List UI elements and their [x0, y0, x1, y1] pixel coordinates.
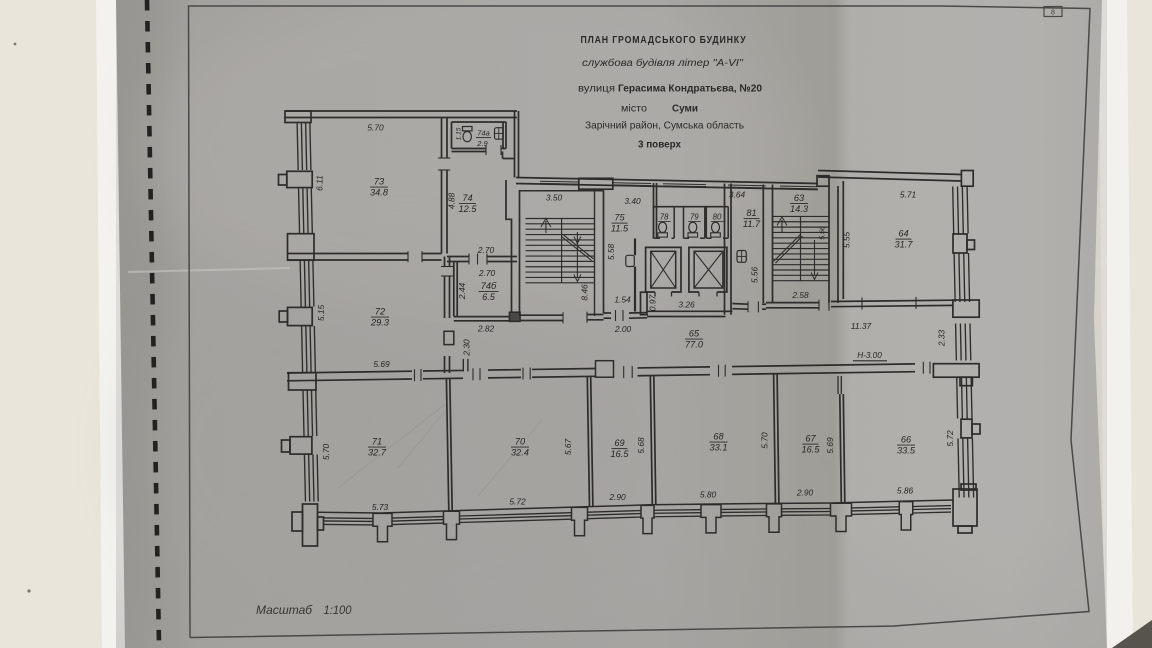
- svg-text:Н-3.00: Н-3.00: [857, 351, 882, 360]
- svg-text:3.64: 3.64: [729, 190, 746, 200]
- svg-text:5.58: 5.58: [606, 244, 616, 261]
- svg-text:81: 81: [746, 208, 756, 218]
- svg-text:5.72: 5.72: [509, 496, 526, 506]
- svg-text:29.3: 29.3: [370, 318, 390, 328]
- svg-text:5.56: 5.56: [820, 226, 827, 240]
- svg-text:2.70: 2.70: [477, 245, 495, 255]
- svg-text:74б: 74б: [481, 281, 497, 291]
- svg-text:Масштаб: Масштаб: [256, 605, 313, 617]
- svg-text:2.70: 2.70: [478, 268, 496, 278]
- svg-text:16.5: 16.5: [802, 445, 821, 455]
- svg-text:вулиця: вулиця: [578, 84, 615, 95]
- svg-text:80: 80: [713, 213, 722, 222]
- svg-text:1:100: 1:100: [324, 605, 353, 617]
- svg-text:77.0: 77.0: [685, 340, 704, 350]
- svg-text:3.50: 3.50: [546, 193, 563, 203]
- svg-text:5.70: 5.70: [367, 123, 384, 133]
- svg-text:5.80: 5.80: [700, 490, 717, 500]
- svg-text:3.26: 3.26: [678, 300, 695, 310]
- svg-text:11.37: 11.37: [851, 321, 872, 331]
- svg-text:33.1: 33.1: [710, 443, 728, 453]
- svg-text:65: 65: [689, 329, 700, 339]
- svg-text:Суми: Суми: [672, 103, 698, 115]
- svg-text:31.7: 31.7: [895, 240, 914, 250]
- svg-text:2.90: 2.90: [796, 488, 814, 498]
- svg-text:2.33: 2.33: [937, 330, 947, 348]
- svg-text:69: 69: [614, 438, 624, 448]
- svg-text:33.5: 33.5: [897, 446, 916, 456]
- svg-text:16.5: 16.5: [611, 449, 630, 459]
- svg-text:6.11: 6.11: [315, 175, 325, 191]
- svg-text:2.30: 2.30: [462, 339, 472, 357]
- svg-text:74: 74: [462, 193, 472, 203]
- svg-text:14.3: 14.3: [790, 204, 809, 214]
- svg-text:5.70: 5.70: [760, 432, 770, 449]
- svg-text:Зарічний район, Сумська област: Зарічний район, Сумська область: [585, 120, 745, 132]
- svg-text:8: 8: [1051, 10, 1055, 17]
- svg-text:8.46: 8.46: [580, 284, 590, 301]
- svg-text:5.56: 5.56: [750, 267, 760, 284]
- svg-text:службова будівля літер "А-VI": службова будівля літер "А-VI": [582, 57, 744, 69]
- svg-text:63: 63: [794, 193, 805, 203]
- svg-text:5.72: 5.72: [945, 430, 955, 447]
- svg-text:місто: місто: [621, 104, 647, 115]
- svg-text:12.5: 12.5: [459, 204, 478, 214]
- svg-text:3 поверх: 3 поверх: [638, 139, 681, 151]
- svg-text:3.40: 3.40: [624, 196, 641, 206]
- svg-text:1.15: 1.15: [456, 127, 463, 140]
- svg-text:ПЛАН ГРОМАДСЬКОГО БУДИНКУ: ПЛАН ГРОМАДСЬКОГО БУДИНКУ: [581, 34, 747, 46]
- svg-text:74а: 74а: [477, 129, 490, 138]
- svg-text:11.5: 11.5: [611, 224, 629, 234]
- svg-text:5.67: 5.67: [563, 439, 573, 456]
- svg-text:2.00: 2.00: [614, 324, 632, 334]
- svg-text:34.8: 34.8: [370, 188, 389, 198]
- svg-text:5.70: 5.70: [321, 444, 331, 461]
- svg-text:75: 75: [614, 213, 625, 223]
- svg-text:5.55: 5.55: [842, 232, 852, 249]
- svg-text:67: 67: [805, 434, 816, 444]
- svg-text:1.54: 1.54: [614, 295, 631, 305]
- svg-text:Герасима Кондратьєва, №20: Герасима Кондратьєва, №20: [618, 83, 762, 95]
- svg-text:2.58: 2.58: [791, 290, 809, 300]
- svg-text:32.4: 32.4: [511, 448, 529, 458]
- svg-text:79: 79: [690, 213, 699, 222]
- svg-text:68: 68: [713, 432, 724, 442]
- svg-text:2.44: 2.44: [457, 283, 467, 301]
- svg-text:78: 78: [660, 213, 669, 222]
- svg-text:2.82: 2.82: [477, 324, 495, 334]
- svg-text:66: 66: [901, 435, 912, 445]
- svg-text:0.97: 0.97: [648, 295, 658, 312]
- svg-text:5.68: 5.68: [636, 437, 646, 454]
- svg-text:64: 64: [898, 229, 908, 239]
- svg-text:2.9: 2.9: [476, 139, 488, 148]
- svg-text:5.69: 5.69: [373, 359, 390, 369]
- svg-text:72: 72: [375, 307, 385, 317]
- svg-text:5.86: 5.86: [897, 486, 914, 496]
- svg-text:6.5: 6.5: [482, 292, 496, 302]
- svg-text:73: 73: [374, 177, 385, 187]
- svg-text:2.90: 2.90: [608, 492, 626, 502]
- svg-text:5.73: 5.73: [372, 502, 389, 512]
- svg-text:5.15: 5.15: [316, 305, 326, 322]
- svg-text:11.7: 11.7: [743, 219, 761, 229]
- svg-text:5.69: 5.69: [825, 437, 835, 454]
- svg-text:4.88: 4.88: [447, 193, 457, 210]
- svg-text:71: 71: [372, 437, 382, 447]
- svg-text:5.71: 5.71: [900, 190, 916, 200]
